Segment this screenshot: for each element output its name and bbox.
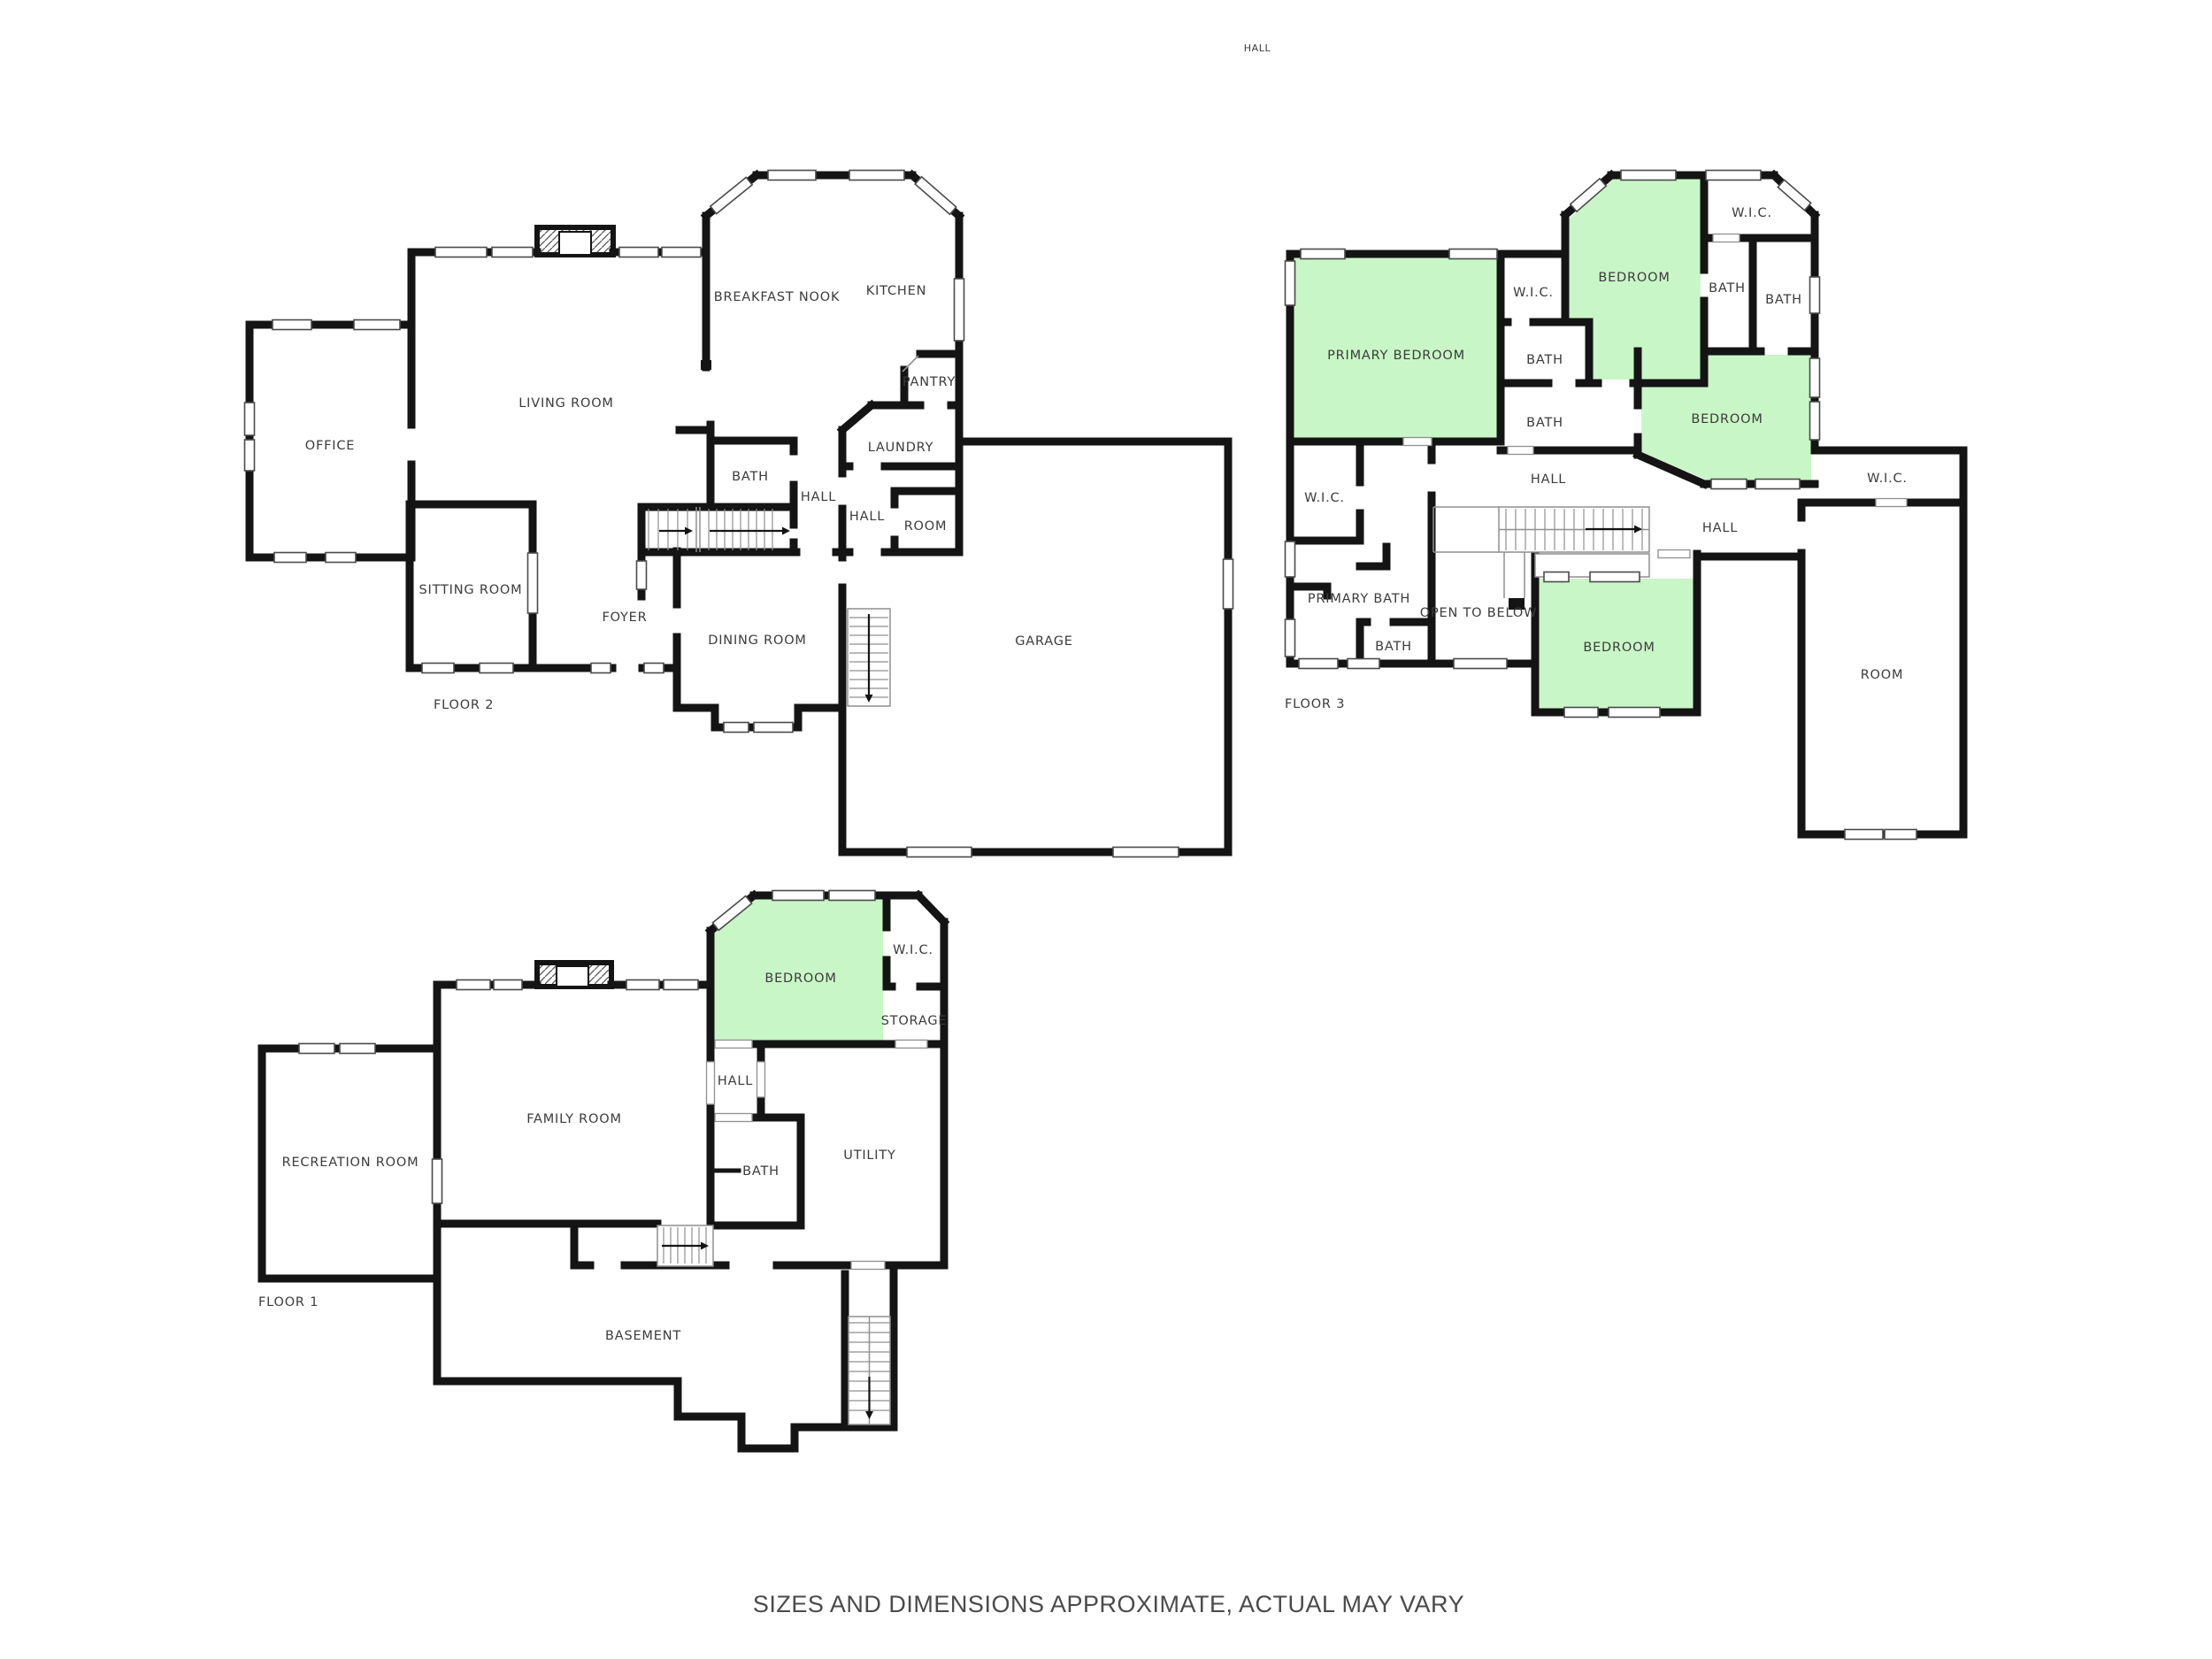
floor-3-title: FLOOR 3 [1285, 697, 1345, 711]
floor-2-title: FLOOR 2 [434, 698, 494, 712]
stairs-floor3 [1433, 507, 1649, 552]
fireplace-floor1 [537, 963, 611, 987]
stairs-basement [849, 1317, 890, 1425]
floor-2-plan: OFFICE LIVING ROOM BREAKFAST NOOK KITCHE… [245, 171, 1233, 857]
room-label-wic-center: W.I.C. [1513, 286, 1554, 300]
room-label-utility: UTILITY [843, 1148, 895, 1163]
room-label-bedroom-f1: BEDROOM [764, 972, 836, 986]
room-label-hall-f1: HALL [718, 1074, 753, 1088]
room-label-primary-bath: PRIMARY BATH [1308, 592, 1410, 606]
primary-bedroom-area [1294, 257, 1497, 438]
room-label-bath-c: BATH [1526, 353, 1563, 367]
room-label-bath-b: BATH [1765, 293, 1802, 307]
room-label-bedroom-right: BEDROOM [1691, 412, 1763, 426]
room-label-office: OFFICE [305, 439, 355, 453]
room-label-hall-center-f3: HALL [1531, 472, 1566, 487]
floor-1-plan: RECREATION ROOM FAMILY ROOM BEDROOM W.I.… [258, 891, 947, 1449]
room-label-storage: STORAGE [881, 1014, 948, 1028]
room-label-kitchen: KITCHEN [866, 284, 926, 298]
room-label-open-to-below: OPEN TO BELOW [1420, 606, 1537, 620]
floor-plan-page: { "image_type": "residential-floor-plan"… [0, 0, 2212, 1659]
room-label-bedroom-bottom: BEDROOM [1583, 641, 1655, 655]
room-label-wic-left: W.I.C. [1304, 491, 1345, 505]
room-label-hall-corridor-f2: HALL [849, 510, 885, 524]
room-label-basement: BASEMENT [605, 1329, 681, 1343]
room-label-dining-room: DINING ROOM [708, 634, 806, 648]
bedroom-f1-area [714, 899, 883, 1041]
stray-hall-label: HALL [1244, 42, 1271, 54]
room-label-pantry: PANTRY [902, 375, 956, 389]
room-label-foyer: FOYER [602, 611, 647, 625]
room-label-wic-top-right: W.I.C. [1732, 206, 1772, 220]
disclaimer-text: SIZES AND DIMENSIONS APPROXIMATE, ACTUAL… [753, 1591, 1464, 1617]
room-label-hall-right-f3: HALL [1702, 521, 1738, 535]
room-label-bath-f1: BATH [742, 1164, 780, 1179]
room-label-room-f3: ROOM [1861, 668, 1904, 682]
room-label-recreation-room: RECREATION ROOM [282, 1156, 419, 1170]
room-label-hall-west-f2: HALL [801, 490, 836, 504]
room-label-room-f2: ROOM [904, 519, 948, 534]
floor-3-plan: PRIMARY BEDROOM W.I.C. BEDROOM W.I.C. BA… [1285, 171, 1963, 840]
room-label-garage: GARAGE [1015, 634, 1073, 649]
room-label-wic-right: W.I.C. [1867, 472, 1908, 486]
floorplan-canvas: OFFICE LIVING ROOM BREAKFAST NOOK KITCHE… [0, 0, 2212, 1659]
room-label-primary-bedroom: PRIMARY BEDROOM [1327, 349, 1465, 363]
room-label-wic-f1: W.I.C. [893, 943, 933, 957]
room-label-laundry: LAUNDRY [868, 441, 934, 455]
room-label-bath-a: BATH [1709, 281, 1746, 296]
room-label-bath-d: BATH [1526, 416, 1563, 430]
room-label-bath-e: BATH [1375, 640, 1412, 654]
stairs-garage [848, 609, 890, 706]
room-label-living-room: LIVING ROOM [518, 396, 613, 411]
room-label-family-room: FAMILY ROOM [526, 1112, 622, 1126]
fireplace-floor2 [537, 227, 613, 255]
room-label-sitting-room: SITTING ROOM [419, 583, 523, 597]
room-label-bath-f2: BATH [732, 470, 769, 484]
room-label-bedroom-top: BEDROOM [1598, 271, 1670, 285]
room-label-breakfast-nook: BREAKFAST NOOK [714, 290, 841, 304]
stairs-floor1-center [657, 1225, 713, 1266]
floor-1-title: FLOOR 1 [258, 1295, 319, 1310]
